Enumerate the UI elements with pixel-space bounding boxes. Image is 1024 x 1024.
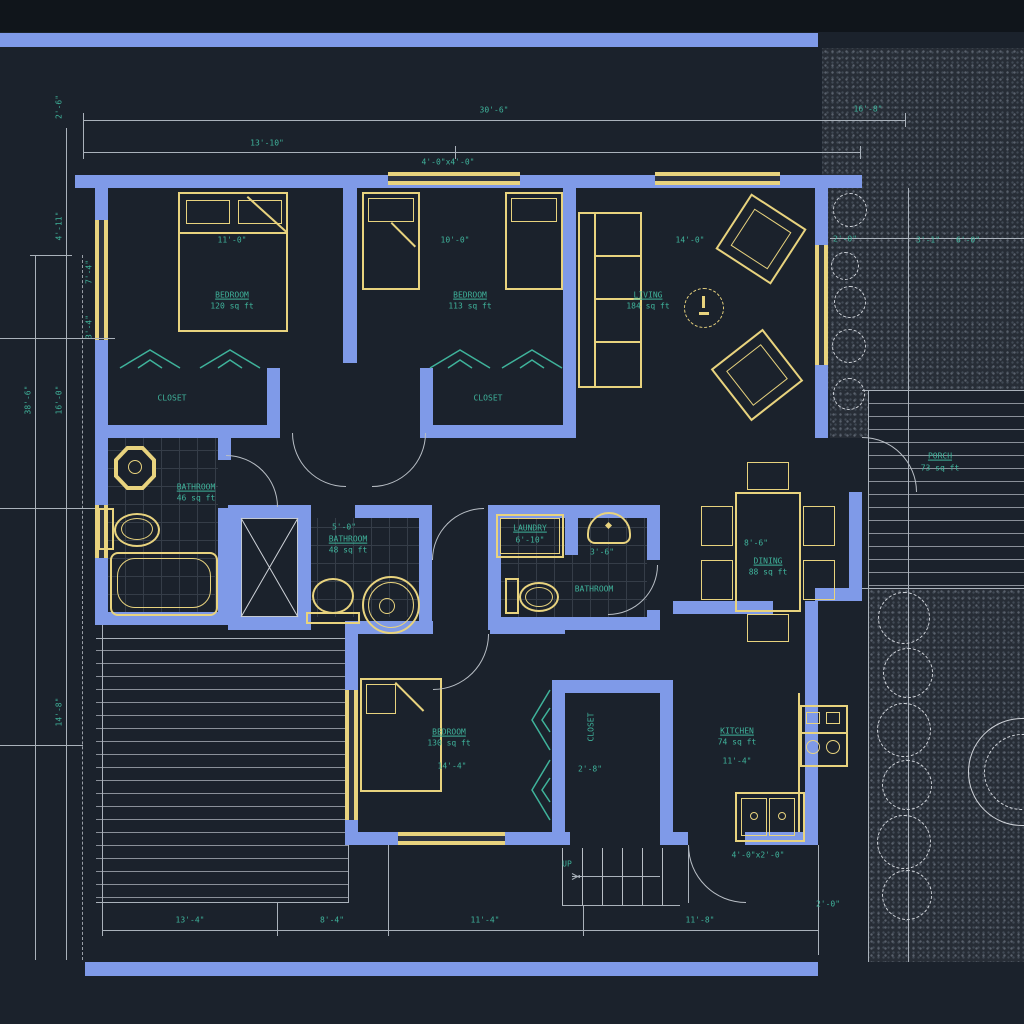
stairs-arrow xyxy=(572,876,660,877)
dim-line xyxy=(83,152,860,153)
room-area: 184 sq ft xyxy=(626,303,669,312)
room-name: BEDROOM xyxy=(432,729,466,738)
drain-icon xyxy=(128,460,142,474)
room-dim: 14'-4" xyxy=(438,763,467,772)
bathtub-inner xyxy=(117,558,211,608)
door-arc xyxy=(432,508,484,560)
ext-line xyxy=(0,508,95,509)
x-brace-icon xyxy=(241,518,298,617)
bush-icon xyxy=(831,252,859,280)
room-name: CLOSET xyxy=(474,395,503,404)
room-dim: 10'-0" xyxy=(441,237,470,246)
room-dim: 11'-4" xyxy=(723,758,752,767)
window xyxy=(815,245,828,365)
wall xyxy=(660,832,688,845)
toilet-tank xyxy=(98,508,114,550)
stairs-edge xyxy=(562,905,680,906)
ext-line xyxy=(0,745,83,746)
wall xyxy=(552,680,565,845)
closet-hanger-icon xyxy=(118,348,182,370)
wall xyxy=(849,492,862,601)
sofa-cushion-line xyxy=(596,255,640,257)
wall xyxy=(95,425,280,438)
stairs-label: UP xyxy=(562,861,572,870)
pillow-icon xyxy=(186,200,230,224)
porch-edge-top xyxy=(862,390,1024,391)
bush-icon xyxy=(877,703,931,757)
wall xyxy=(505,832,570,845)
wall xyxy=(647,505,660,560)
closet-hanger-icon xyxy=(198,348,262,370)
dim-text: 13'-10" xyxy=(250,140,284,149)
dim-text: 8'-4" xyxy=(320,917,344,926)
wall xyxy=(345,832,403,845)
room-dim: 14'-0" xyxy=(676,237,705,246)
ext-line xyxy=(0,338,115,339)
room-area: 88 sq ft xyxy=(749,569,788,578)
wall xyxy=(228,505,241,630)
table-glyph xyxy=(702,296,705,308)
drain-icon xyxy=(778,812,786,820)
wall xyxy=(267,368,280,425)
bush-icon xyxy=(882,870,932,920)
wall xyxy=(660,680,673,845)
burner-icon xyxy=(806,740,820,754)
wall xyxy=(420,368,433,425)
ext-line xyxy=(102,625,103,930)
dim-line xyxy=(35,255,36,960)
dim-tick xyxy=(83,113,84,159)
stove-divider xyxy=(802,732,846,734)
room-name: CLOSET xyxy=(158,395,187,404)
bush-icon xyxy=(834,286,866,318)
bush-icon xyxy=(832,329,866,363)
room-area: 113 sq ft xyxy=(448,303,491,312)
door-leaf xyxy=(688,845,689,903)
dim-tick xyxy=(905,113,906,127)
window xyxy=(398,832,505,845)
wall xyxy=(228,617,311,630)
chair-icon xyxy=(747,462,789,490)
door-arc xyxy=(292,433,346,487)
drain-icon xyxy=(750,812,758,820)
closet-hanger-icon xyxy=(428,348,492,370)
door-arc xyxy=(226,455,278,507)
porch-edge-bottom xyxy=(862,588,1024,589)
cad-drawing-canvas[interactable]: 30'-6" 13'-10" 16'-8" 4'-0"x4'-0" 2'-0" … xyxy=(0,0,1024,1024)
dim-text: 4'-0"x4'-0" xyxy=(422,159,475,168)
window xyxy=(655,172,780,185)
fixture-dim: 3'-6" xyxy=(590,549,614,558)
bush-icon xyxy=(833,193,867,227)
overhang-dashed-line xyxy=(82,255,83,960)
wall xyxy=(419,505,432,634)
dining-table-icon xyxy=(735,492,801,612)
dim-text: 6'-0" xyxy=(956,237,980,246)
door-arc xyxy=(372,433,426,487)
toilet-tank xyxy=(306,612,360,624)
room-dim: 5'-0" xyxy=(332,524,356,533)
dim-text: 3'-4" xyxy=(86,315,95,339)
bush-icon xyxy=(878,592,930,644)
dim-line xyxy=(83,120,905,121)
room-name: BATHROOM xyxy=(329,536,368,545)
room-area: 74 sq ft xyxy=(718,739,757,748)
chair-icon xyxy=(701,506,733,546)
closet-hanger-icon xyxy=(530,758,552,822)
room-name: BEDROOM xyxy=(453,292,487,301)
sofa-icon xyxy=(578,212,642,388)
dim-text: 13'-4" xyxy=(176,917,205,926)
dim-text: 16'-8" xyxy=(854,106,883,115)
ext-line xyxy=(277,902,278,930)
wall xyxy=(552,680,673,693)
dim-line xyxy=(102,930,818,931)
window xyxy=(345,690,358,820)
room-name: LAUNDRY xyxy=(513,525,547,534)
wall xyxy=(565,505,578,555)
deck-edge-bottom xyxy=(96,902,349,903)
side-table-icon xyxy=(684,288,724,328)
dim-text: 3'-1" xyxy=(916,237,940,246)
room-name: PORCH xyxy=(928,453,952,462)
fixture-dim: 4'-0"x2'-0" xyxy=(732,852,785,861)
wall xyxy=(488,617,660,630)
ext-line xyxy=(583,905,584,930)
toilet-tank xyxy=(505,578,519,614)
pillow-icon xyxy=(366,684,396,714)
toilet-icon xyxy=(312,578,354,614)
table-glyph xyxy=(699,312,709,315)
dim-text: 14'-8" xyxy=(56,698,65,727)
dim-text: 11'-8" xyxy=(686,917,715,926)
room-area: 130 sq ft xyxy=(427,740,470,749)
dim-text: 2'-0" xyxy=(816,901,840,910)
wall xyxy=(343,188,357,363)
top-band xyxy=(0,0,1024,32)
room-dim: 6'-10" xyxy=(516,537,545,546)
closet-hanger-icon xyxy=(530,688,552,752)
room-name: DINING xyxy=(754,558,783,567)
wall xyxy=(563,188,576,438)
dim-text: 7'-4" xyxy=(86,260,95,284)
chair-icon xyxy=(701,560,733,600)
wall xyxy=(420,425,576,438)
room-name: CLOSET xyxy=(588,713,597,742)
pillow-icon xyxy=(368,198,414,222)
room-area: 46 sq ft xyxy=(177,495,216,504)
room-name: KITCHEN xyxy=(720,728,754,737)
dim-text: 11'-4" xyxy=(471,917,500,926)
chair-icon xyxy=(803,506,835,546)
room-dim: 2'-8" xyxy=(578,766,602,775)
room-name: BATHROOM xyxy=(177,484,216,493)
room-area: 120 sq ft xyxy=(210,303,253,312)
pillow-icon xyxy=(511,198,557,222)
room-area: 73 sq ft xyxy=(921,465,960,474)
toilet-bowl xyxy=(525,587,553,607)
closet-hanger-icon xyxy=(500,348,564,370)
room-name: BATHROOM xyxy=(575,586,614,595)
room-dim: 11'-0" xyxy=(218,237,247,246)
blanket-line xyxy=(178,232,288,234)
door-arc xyxy=(433,634,489,690)
room-dim: 8'-6" xyxy=(744,540,768,549)
burner-icon xyxy=(826,712,840,724)
bush-icon xyxy=(883,648,933,698)
dim-tick xyxy=(860,146,861,159)
window xyxy=(95,220,108,340)
ext-line xyxy=(388,845,389,930)
bush-icon xyxy=(882,760,932,810)
toilet-bowl xyxy=(121,518,153,540)
border-wall-top xyxy=(0,33,818,47)
door-arc xyxy=(608,565,658,615)
dim-text: 16'-0" xyxy=(56,386,65,415)
bush-icon xyxy=(833,378,865,410)
sofa-back-line xyxy=(594,214,596,386)
window xyxy=(388,172,520,185)
sofa-cushion-line xyxy=(596,341,640,343)
side-deck xyxy=(96,638,348,902)
drain-icon xyxy=(379,598,395,614)
bush-icon xyxy=(877,815,931,869)
dim-text: 4'-11" xyxy=(56,212,65,241)
room-name: BEDROOM xyxy=(215,292,249,301)
dim-line xyxy=(66,128,67,960)
dim-tick xyxy=(30,255,72,256)
dim-text: 2'-0" xyxy=(833,236,857,245)
chair-icon xyxy=(803,560,835,600)
burner-icon xyxy=(826,740,840,754)
room-name: LIVING xyxy=(634,292,663,301)
dim-text: 30'-6" xyxy=(480,107,509,116)
deck-edge-top xyxy=(96,638,349,639)
room-area: 48 sq ft xyxy=(329,547,368,556)
border-wall-bottom xyxy=(85,962,818,976)
burner-icon xyxy=(806,712,820,724)
dim-text: 38'-6" xyxy=(25,386,34,415)
dim-text: 2'-6" xyxy=(56,95,65,119)
chair-icon xyxy=(747,614,789,642)
